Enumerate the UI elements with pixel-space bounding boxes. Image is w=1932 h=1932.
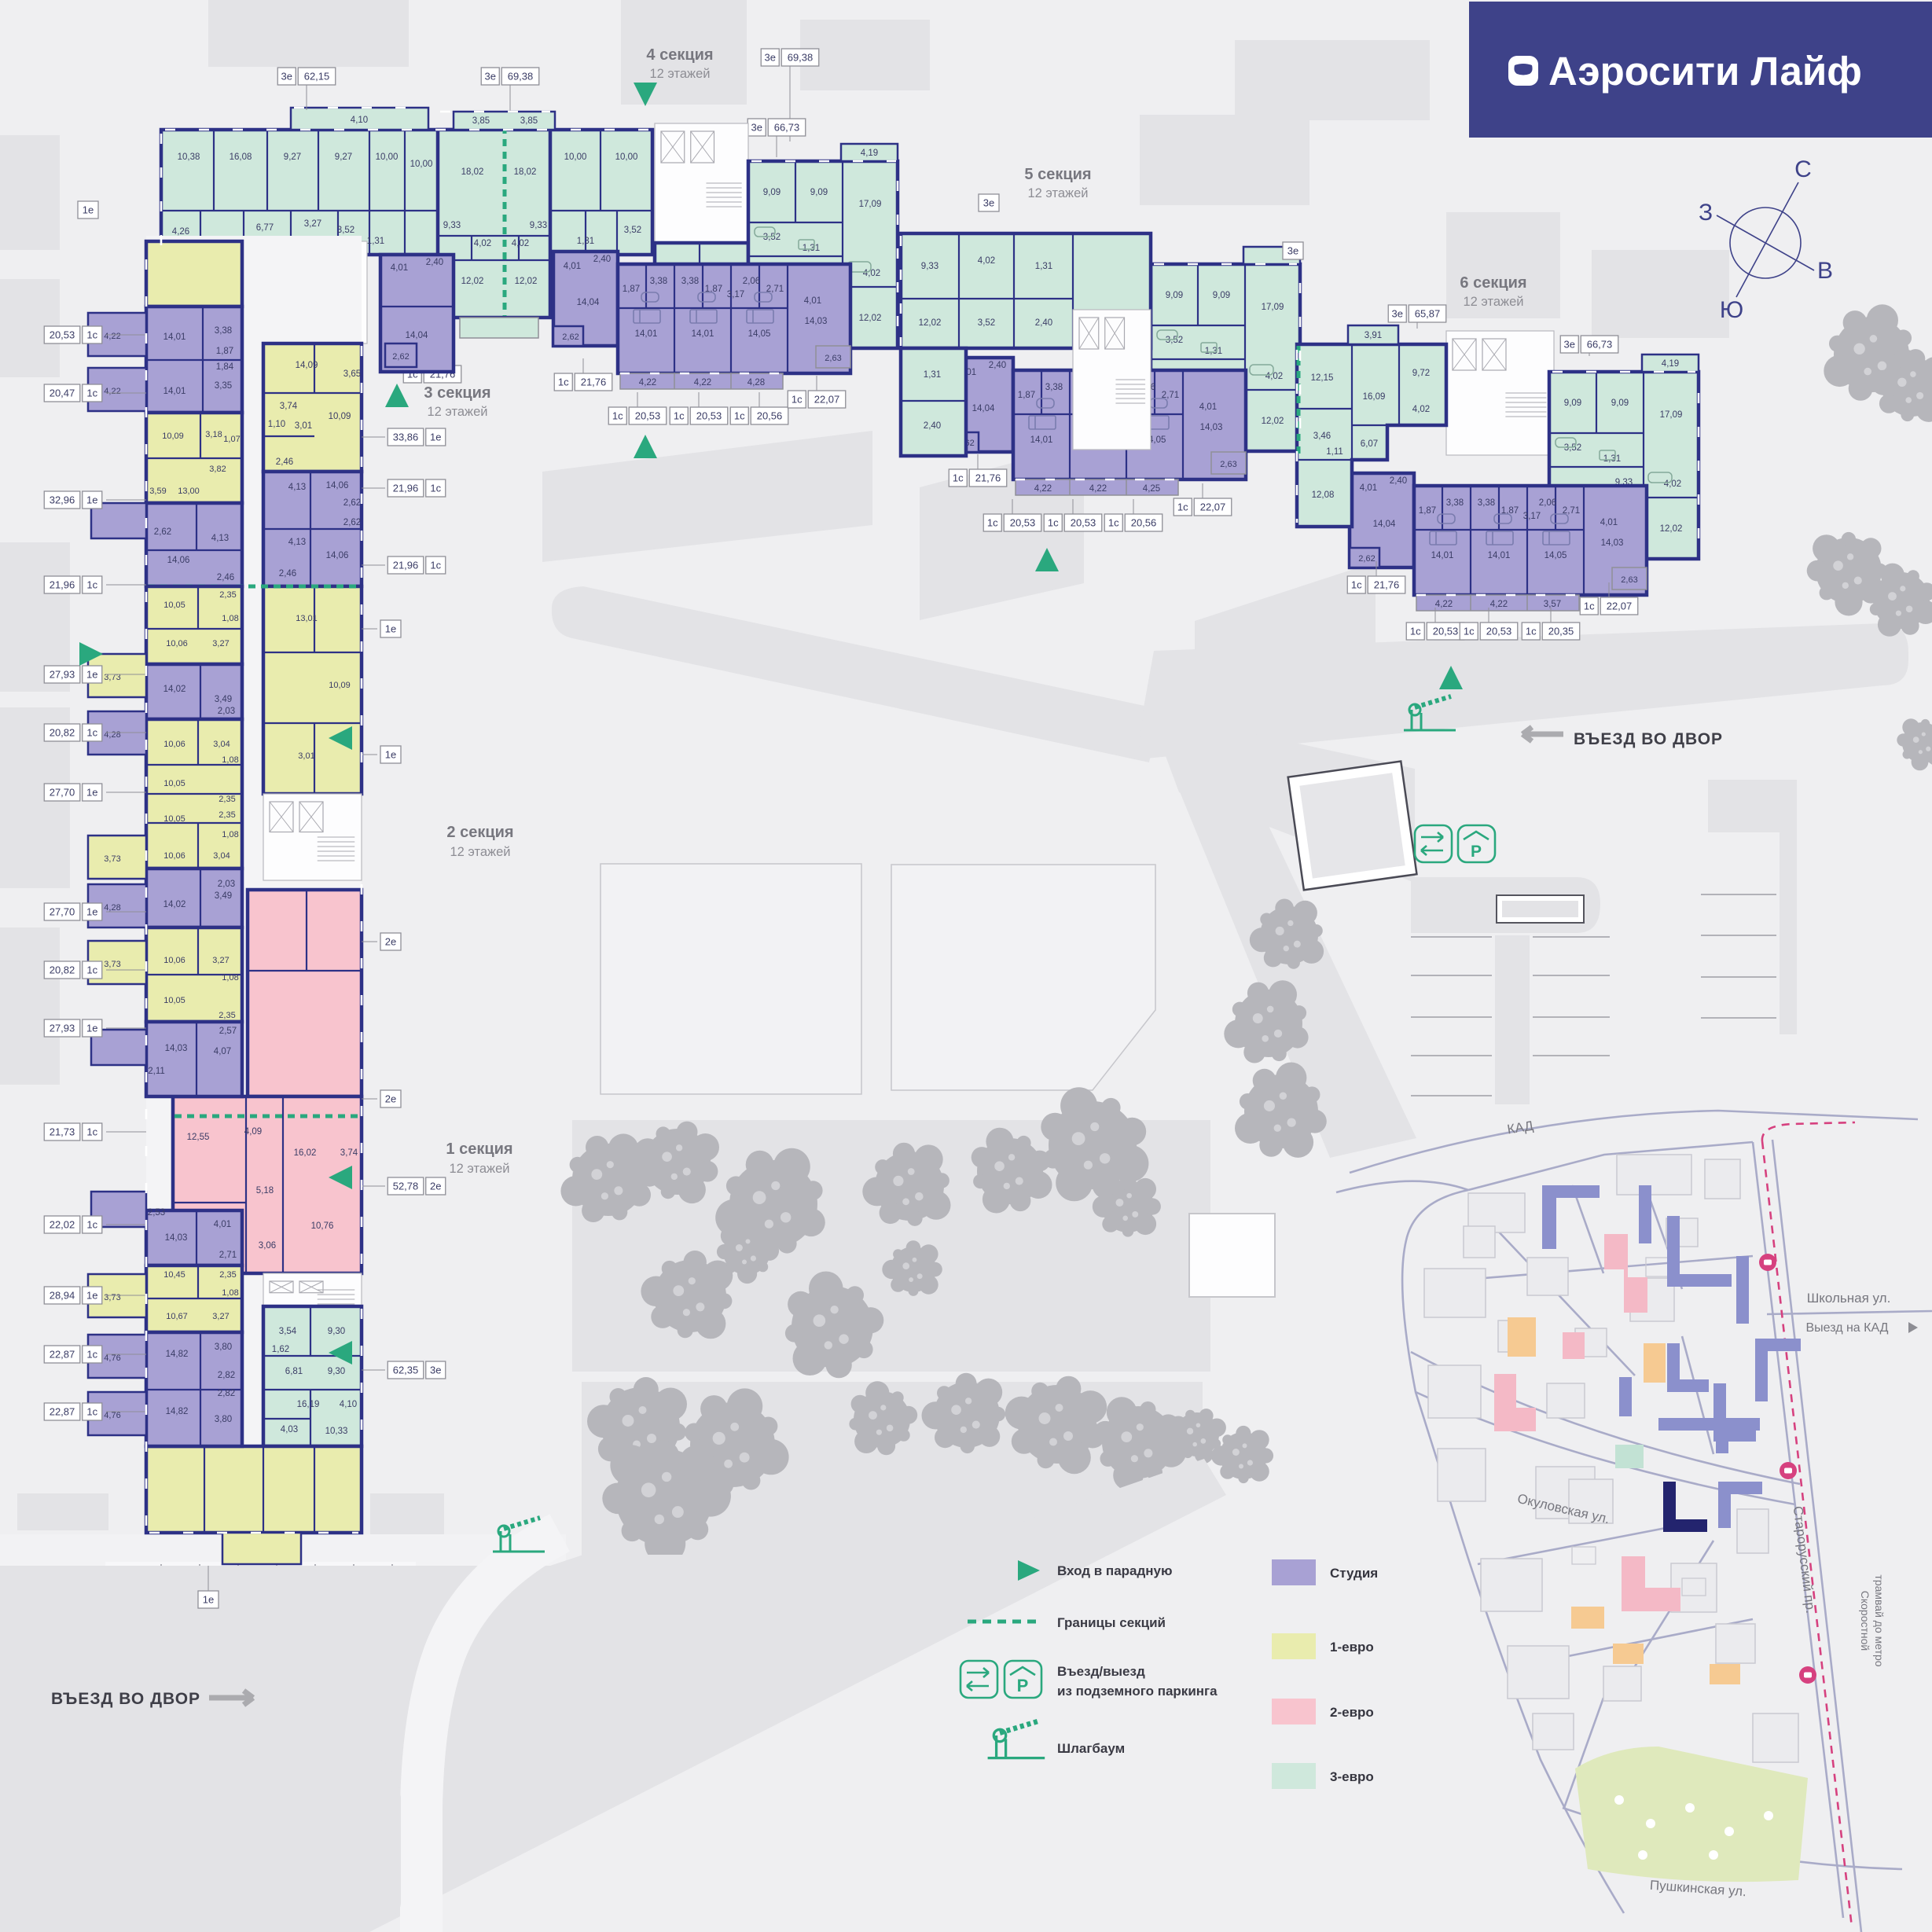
svg-text:1с: 1с: [86, 964, 97, 976]
svg-text:20,56: 20,56: [1131, 517, 1157, 529]
svg-text:14,05: 14,05: [748, 329, 771, 339]
svg-text:9,09: 9,09: [1611, 399, 1629, 408]
svg-text:1-евро: 1-евро: [1330, 1640, 1374, 1655]
svg-text:10,06: 10,06: [163, 740, 185, 749]
svg-text:2,63: 2,63: [825, 354, 841, 363]
svg-text:4,19: 4,19: [861, 149, 878, 158]
svg-text:4,22: 4,22: [1089, 484, 1107, 494]
svg-text:3,38: 3,38: [215, 326, 232, 336]
svg-text:9,09: 9,09: [810, 188, 828, 197]
svg-text:1е: 1е: [385, 749, 396, 761]
svg-text:4,22: 4,22: [1490, 600, 1508, 609]
svg-text:1с: 1с: [86, 1219, 97, 1231]
svg-text:3,80: 3,80: [215, 1342, 232, 1352]
svg-text:1,11: 1,11: [1326, 447, 1343, 457]
svg-text:62,15: 62,15: [304, 71, 330, 83]
svg-text:3,18: 3,18: [205, 430, 222, 439]
svg-text:14,01: 14,01: [1030, 435, 1053, 445]
svg-text:1,31: 1,31: [924, 370, 941, 380]
svg-text:3,38: 3,38: [1446, 498, 1464, 508]
svg-text:3,01: 3,01: [295, 421, 312, 431]
svg-text:17,09: 17,09: [1262, 303, 1284, 312]
svg-text:3е: 3е: [1392, 308, 1403, 320]
svg-text:2-евро: 2-евро: [1330, 1705, 1374, 1720]
svg-text:2,03: 2,03: [218, 880, 235, 889]
svg-text:20,35: 20,35: [1548, 626, 1574, 637]
svg-text:Вход в парадную: Вход в парадную: [1057, 1563, 1173, 1578]
svg-text:3,52: 3,52: [763, 233, 781, 242]
svg-text:14,01: 14,01: [1488, 551, 1511, 560]
svg-text:21,96: 21,96: [393, 483, 419, 494]
svg-text:ВЪЕЗД ВО ДВОР: ВЪЕЗД ВО ДВОР: [51, 1690, 200, 1708]
svg-text:21,73: 21,73: [50, 1126, 75, 1138]
svg-text:1с: 1с: [86, 388, 97, 399]
svg-text:4,28: 4,28: [747, 378, 765, 388]
svg-text:Выезд на КАД: Выезд на КАД: [1805, 1321, 1888, 1335]
svg-text:1,87: 1,87: [1419, 506, 1436, 516]
svg-text:1с: 1с: [1464, 626, 1475, 637]
svg-text:66,73: 66,73: [1587, 339, 1613, 351]
svg-text:12 этажей: 12 этажей: [428, 405, 488, 419]
svg-text:2,40: 2,40: [426, 258, 443, 267]
svg-text:Школьная ул.: Школьная ул.: [1807, 1291, 1891, 1306]
svg-text:14,01: 14,01: [1431, 551, 1454, 560]
svg-text:2,62: 2,62: [154, 527, 171, 537]
svg-text:12,08: 12,08: [1312, 490, 1335, 500]
svg-text:2,62: 2,62: [343, 498, 361, 508]
svg-text:1,08: 1,08: [222, 1288, 238, 1298]
svg-text:9,30: 9,30: [328, 1327, 345, 1336]
svg-text:1е: 1е: [430, 432, 441, 443]
svg-text:18,02: 18,02: [461, 167, 484, 177]
svg-text:1с: 1с: [86, 1406, 97, 1418]
svg-text:3,52: 3,52: [624, 226, 641, 235]
svg-text:20,53: 20,53: [1071, 517, 1096, 529]
svg-text:4,02: 4,02: [1412, 405, 1430, 414]
svg-text:1с: 1с: [558, 376, 569, 388]
svg-text:2,63: 2,63: [1621, 575, 1637, 585]
svg-text:Аэросити Лайф: Аэросити Лайф: [1548, 49, 1862, 94]
svg-text:4,10: 4,10: [340, 1400, 357, 1409]
svg-text:В: В: [1817, 258, 1833, 284]
svg-text:4,02: 4,02: [1265, 372, 1283, 381]
svg-text:14,02: 14,02: [163, 685, 186, 694]
svg-text:10,06: 10,06: [163, 851, 185, 861]
svg-text:5,18: 5,18: [256, 1186, 274, 1196]
svg-text:3,54: 3,54: [279, 1327, 297, 1336]
svg-text:69,38: 69,38: [788, 52, 814, 64]
svg-text:6 секция: 6 секция: [1460, 274, 1526, 292]
svg-text:4,19: 4,19: [1662, 359, 1679, 369]
svg-text:2,35: 2,35: [219, 590, 236, 600]
svg-text:18,02: 18,02: [514, 167, 537, 177]
svg-text:3,38: 3,38: [650, 277, 667, 286]
svg-text:10,06: 10,06: [163, 956, 185, 965]
svg-text:4,10: 4,10: [351, 116, 368, 125]
svg-text:1,31: 1,31: [577, 237, 594, 246]
svg-text:13,01: 13,01: [296, 614, 318, 623]
svg-text:20,53: 20,53: [1433, 626, 1459, 637]
svg-text:22,07: 22,07: [814, 394, 840, 406]
svg-text:1,08: 1,08: [222, 973, 238, 983]
svg-text:2,03: 2,03: [218, 707, 235, 716]
svg-text:3е: 3е: [751, 122, 762, 134]
svg-text:1,31: 1,31: [1035, 262, 1052, 271]
svg-text:1,31: 1,31: [367, 237, 384, 246]
svg-text:4,02: 4,02: [1664, 479, 1681, 489]
svg-text:1с: 1с: [430, 560, 441, 571]
svg-text:1с: 1с: [1108, 517, 1119, 529]
svg-text:14,03: 14,03: [165, 1233, 188, 1243]
svg-text:2,40: 2,40: [989, 361, 1006, 370]
svg-text:20,82: 20,82: [50, 727, 75, 739]
svg-text:17,09: 17,09: [1660, 410, 1683, 420]
svg-text:10,09: 10,09: [329, 412, 351, 421]
svg-text:6,07: 6,07: [1361, 439, 1378, 449]
svg-text:2,35: 2,35: [219, 795, 235, 804]
svg-text:13,00: 13,00: [178, 487, 200, 496]
svg-text:12 этажей: 12 этажей: [1464, 295, 1524, 309]
svg-text:3е: 3е: [765, 52, 776, 64]
svg-text:Въезд/выезд: Въезд/выезд: [1057, 1664, 1145, 1679]
svg-text:3,85: 3,85: [472, 116, 490, 126]
svg-text:2 секция: 2 секция: [446, 824, 513, 841]
svg-text:3е: 3е: [1287, 245, 1298, 257]
svg-text:3,38: 3,38: [681, 277, 699, 286]
svg-text:4,01: 4,01: [564, 262, 581, 271]
svg-text:14,01: 14,01: [692, 329, 714, 339]
svg-text:1с: 1с: [86, 1126, 97, 1138]
svg-text:1е: 1е: [86, 906, 97, 918]
svg-text:9,09: 9,09: [1166, 291, 1183, 300]
svg-text:12,02: 12,02: [1660, 524, 1683, 534]
svg-text:3е: 3е: [485, 71, 496, 83]
svg-text:2е: 2е: [385, 1093, 396, 1105]
svg-text:2,35: 2,35: [219, 1270, 236, 1280]
svg-text:3,49: 3,49: [215, 891, 232, 901]
svg-text:14,03: 14,03: [1601, 538, 1624, 548]
svg-text:9,30: 9,30: [328, 1367, 345, 1376]
svg-text:20,53: 20,53: [1010, 517, 1036, 529]
svg-text:10,00: 10,00: [410, 160, 433, 169]
svg-text:3,38: 3,38: [1045, 383, 1063, 392]
svg-text:4,02: 4,02: [512, 239, 529, 248]
svg-text:2,62: 2,62: [343, 518, 361, 527]
svg-text:14,06: 14,06: [167, 556, 190, 565]
svg-text:4,22: 4,22: [1034, 484, 1052, 494]
svg-text:4,25: 4,25: [1143, 484, 1160, 494]
svg-text:2,82: 2,82: [218, 1389, 235, 1398]
svg-text:22,87: 22,87: [50, 1406, 75, 1418]
svg-text:2,71: 2,71: [219, 1251, 237, 1260]
svg-text:3,80: 3,80: [215, 1415, 232, 1424]
svg-text:69,38: 69,38: [508, 71, 534, 83]
svg-text:3,06: 3,06: [259, 1241, 276, 1251]
svg-text:2,62: 2,62: [392, 352, 409, 362]
svg-text:1,10: 1,10: [268, 420, 285, 429]
svg-text:33,86: 33,86: [393, 432, 419, 443]
svg-text:1,87: 1,87: [216, 347, 233, 356]
svg-text:3,91: 3,91: [1365, 331, 1382, 340]
svg-text:4,22: 4,22: [694, 378, 711, 388]
svg-text:10,09: 10,09: [329, 681, 351, 690]
svg-text:Скоростной: Скоростной: [1859, 1591, 1871, 1651]
svg-text:3,27: 3,27: [212, 639, 229, 648]
svg-text:1е: 1е: [203, 1594, 214, 1606]
svg-text:1е: 1е: [86, 669, 97, 681]
svg-text:3е: 3е: [983, 197, 994, 209]
svg-text:14,01: 14,01: [635, 329, 658, 339]
svg-text:3,52: 3,52: [978, 318, 995, 328]
svg-text:3е: 3е: [1564, 339, 1575, 351]
svg-text:4,01: 4,01: [214, 1220, 231, 1229]
svg-text:3,85: 3,85: [520, 116, 538, 126]
svg-text:14,04: 14,04: [1373, 520, 1396, 529]
svg-text:3е: 3е: [430, 1365, 441, 1376]
svg-text:22,02: 22,02: [50, 1219, 75, 1231]
svg-text:3,73: 3,73: [104, 960, 120, 969]
svg-text:3,17: 3,17: [1523, 512, 1541, 521]
svg-text:21,76: 21,76: [975, 472, 1001, 484]
svg-text:2,63: 2,63: [1220, 460, 1236, 469]
svg-text:1с: 1с: [1351, 579, 1362, 591]
svg-text:2,62: 2,62: [562, 332, 578, 342]
svg-text:9,33: 9,33: [921, 262, 938, 271]
svg-text:10,05: 10,05: [163, 996, 185, 1005]
svg-text:21,76: 21,76: [1374, 579, 1400, 591]
svg-text:10,05: 10,05: [163, 779, 185, 788]
svg-text:3,82: 3,82: [209, 465, 226, 474]
svg-text:20,56: 20,56: [757, 410, 783, 422]
svg-text:3,35: 3,35: [215, 381, 232, 391]
svg-text:14,09: 14,09: [296, 361, 318, 370]
svg-text:12 этажей: 12 этажей: [450, 845, 511, 859]
svg-text:14,05: 14,05: [1544, 551, 1567, 560]
svg-text:3,65: 3,65: [343, 369, 361, 379]
svg-text:1,84: 1,84: [216, 362, 234, 372]
svg-text:3,46: 3,46: [1313, 432, 1331, 441]
svg-text:14,82: 14,82: [166, 1407, 189, 1416]
svg-text:28,94: 28,94: [50, 1290, 75, 1302]
svg-text:трамвай до метро: трамвай до метро: [1873, 1574, 1886, 1666]
svg-text:3,59: 3,59: [149, 487, 166, 496]
svg-text:12 этажей: 12 этажей: [650, 67, 711, 81]
svg-text:21,96: 21,96: [50, 579, 75, 591]
svg-text:3,01: 3,01: [298, 751, 314, 761]
svg-text:12,55: 12,55: [187, 1133, 210, 1142]
svg-text:2,40: 2,40: [1035, 318, 1052, 328]
svg-text:10,05: 10,05: [163, 814, 185, 824]
svg-text:3,04: 3,04: [213, 740, 230, 749]
svg-text:3,73: 3,73: [104, 1293, 120, 1302]
svg-text:3,73: 3,73: [104, 854, 120, 864]
svg-text:3,52: 3,52: [1166, 336, 1183, 345]
svg-text:14,04: 14,04: [406, 331, 428, 340]
svg-text:4,76: 4,76: [104, 1411, 120, 1420]
svg-text:10,45: 10,45: [163, 1270, 185, 1280]
svg-text:2е: 2е: [385, 936, 396, 948]
svg-text:3 секция: 3 секция: [424, 384, 490, 402]
svg-text:1с: 1с: [953, 472, 964, 484]
svg-text:4,22: 4,22: [104, 332, 120, 341]
svg-text:22,07: 22,07: [1200, 501, 1226, 513]
svg-text:10,76: 10,76: [311, 1221, 334, 1231]
svg-text:1е: 1е: [385, 623, 396, 635]
svg-text:4,07: 4,07: [214, 1047, 231, 1056]
svg-text:С: С: [1794, 156, 1812, 182]
svg-text:14,06: 14,06: [326, 551, 349, 560]
svg-text:4,01: 4,01: [1199, 402, 1217, 412]
svg-text:1с: 1с: [1410, 626, 1421, 637]
svg-text:20,53: 20,53: [50, 329, 75, 341]
svg-text:10,09: 10,09: [162, 432, 184, 441]
svg-text:2,82: 2,82: [218, 1371, 235, 1380]
svg-text:9,09: 9,09: [1564, 399, 1581, 408]
svg-text:1с: 1с: [86, 579, 97, 591]
svg-text:3,27: 3,27: [212, 1312, 229, 1321]
svg-text:2,40: 2,40: [1390, 476, 1407, 486]
svg-text:3-евро: 3-евро: [1330, 1769, 1374, 1784]
svg-text:12,02: 12,02: [859, 314, 882, 323]
svg-text:2,46: 2,46: [276, 457, 293, 467]
svg-text:10,38: 10,38: [178, 152, 200, 162]
svg-text:27,93: 27,93: [50, 1023, 75, 1034]
svg-text:1с: 1с: [734, 410, 745, 422]
svg-text:14,04: 14,04: [577, 298, 600, 307]
svg-text:12 этажей: 12 этажей: [1028, 186, 1089, 200]
svg-text:10,06: 10,06: [166, 639, 188, 648]
svg-text:12,02: 12,02: [919, 318, 942, 328]
svg-text:2,46: 2,46: [217, 573, 234, 582]
svg-text:16,08: 16,08: [230, 152, 252, 162]
svg-text:62,35: 62,35: [393, 1365, 419, 1376]
svg-text:4,02: 4,02: [863, 269, 880, 278]
svg-text:9,33: 9,33: [443, 221, 461, 230]
svg-text:из подземного паркинга: из подземного паркинга: [1057, 1684, 1218, 1699]
svg-text:27,93: 27,93: [50, 669, 75, 681]
svg-text:22,87: 22,87: [50, 1349, 75, 1361]
svg-text:27,70: 27,70: [50, 906, 75, 918]
svg-text:2,62: 2,62: [1358, 554, 1375, 564]
svg-text:2,46: 2,46: [279, 569, 296, 578]
svg-text:4,76: 4,76: [104, 1354, 120, 1363]
svg-text:17,09: 17,09: [859, 200, 882, 209]
svg-text:14,03: 14,03: [1200, 423, 1223, 432]
svg-text:1,08: 1,08: [222, 755, 238, 765]
svg-text:4,02: 4,02: [978, 256, 995, 266]
svg-text:52,78: 52,78: [393, 1181, 419, 1192]
svg-text:14,01: 14,01: [163, 332, 186, 342]
svg-text:З: З: [1699, 200, 1713, 226]
svg-text:1 секция: 1 секция: [446, 1140, 512, 1158]
svg-text:1с: 1с: [792, 394, 803, 406]
svg-text:12,02: 12,02: [1262, 417, 1284, 426]
svg-text:Границы секций: Границы секций: [1057, 1615, 1166, 1630]
svg-text:4,22: 4,22: [639, 378, 656, 388]
svg-text:2,06: 2,06: [1539, 498, 1556, 508]
svg-text:10,67: 10,67: [166, 1312, 188, 1321]
svg-text:2,11: 2,11: [148, 1067, 165, 1076]
svg-text:2,06: 2,06: [743, 277, 760, 286]
svg-text:14,04: 14,04: [972, 404, 995, 413]
svg-text:4 секция: 4 секция: [646, 46, 713, 64]
svg-text:1,08: 1,08: [222, 614, 238, 623]
svg-text:4,13: 4,13: [288, 538, 306, 547]
svg-text:1е: 1е: [83, 204, 94, 216]
svg-text:2,53: 2,53: [148, 1208, 165, 1218]
svg-text:4,01: 4,01: [391, 263, 408, 273]
svg-text:1,31: 1,31: [803, 244, 820, 253]
svg-text:9,33: 9,33: [530, 221, 547, 230]
svg-text:10,33: 10,33: [325, 1427, 348, 1436]
svg-text:14,03: 14,03: [805, 317, 828, 326]
svg-text:12,15: 12,15: [1311, 373, 1334, 383]
svg-text:3,74: 3,74: [280, 402, 298, 411]
svg-text:1,62: 1,62: [272, 1345, 289, 1354]
svg-text:6,77: 6,77: [256, 223, 274, 233]
svg-text:4,03: 4,03: [281, 1425, 298, 1434]
svg-text:9,72: 9,72: [1412, 369, 1430, 378]
svg-text:3,27: 3,27: [304, 219, 321, 229]
svg-text:1с: 1с: [86, 727, 97, 739]
svg-text:3,74: 3,74: [340, 1148, 358, 1158]
svg-text:P: P: [1017, 1676, 1029, 1695]
svg-text:14,01: 14,01: [163, 387, 186, 396]
svg-text:4,28: 4,28: [104, 730, 120, 740]
svg-text:3,49: 3,49: [215, 695, 232, 704]
svg-text:10,00: 10,00: [564, 152, 587, 162]
svg-text:12,02: 12,02: [461, 277, 484, 286]
svg-text:4,01: 4,01: [1360, 483, 1377, 493]
svg-text:10,00: 10,00: [376, 152, 399, 162]
svg-text:5 секция: 5 секция: [1024, 166, 1091, 183]
svg-text:10,05: 10,05: [163, 601, 185, 610]
svg-text:27,70: 27,70: [50, 787, 75, 799]
svg-text:12 этажей: 12 этажей: [450, 1162, 510, 1176]
svg-text:3е: 3е: [281, 71, 292, 83]
svg-text:1,87: 1,87: [623, 285, 640, 294]
svg-text:1е: 1е: [86, 1290, 97, 1302]
svg-text:4,26: 4,26: [172, 227, 189, 237]
svg-text:20,53: 20,53: [635, 410, 661, 422]
svg-text:4,01: 4,01: [804, 296, 821, 306]
svg-text:16,09: 16,09: [1363, 392, 1386, 402]
svg-text:1е: 1е: [86, 787, 97, 799]
svg-text:14,06: 14,06: [326, 481, 349, 490]
svg-text:32,96: 32,96: [50, 494, 75, 506]
svg-text:1с: 1с: [987, 517, 998, 529]
svg-text:1,87: 1,87: [1018, 391, 1035, 400]
svg-text:3,17: 3,17: [727, 290, 744, 299]
svg-text:12,02: 12,02: [515, 277, 538, 286]
svg-text:4,02: 4,02: [474, 239, 491, 248]
svg-text:2,40: 2,40: [593, 255, 611, 264]
svg-text:3,52: 3,52: [1564, 443, 1581, 453]
svg-text:1с: 1с: [430, 483, 441, 494]
svg-text:2е: 2е: [430, 1181, 441, 1192]
svg-text:14,02: 14,02: [163, 900, 186, 909]
svg-text:10,00: 10,00: [615, 152, 638, 162]
svg-text:21,76: 21,76: [581, 376, 607, 388]
svg-text:2,35: 2,35: [219, 1011, 235, 1020]
svg-text:4,28: 4,28: [104, 903, 120, 913]
svg-text:9,27: 9,27: [335, 152, 352, 162]
svg-text:1,07: 1,07: [223, 435, 240, 444]
svg-text:22,07: 22,07: [1607, 601, 1633, 612]
svg-text:4,22: 4,22: [104, 387, 120, 396]
svg-text:1е: 1е: [86, 1023, 97, 1034]
svg-text:4,22: 4,22: [1435, 600, 1453, 609]
